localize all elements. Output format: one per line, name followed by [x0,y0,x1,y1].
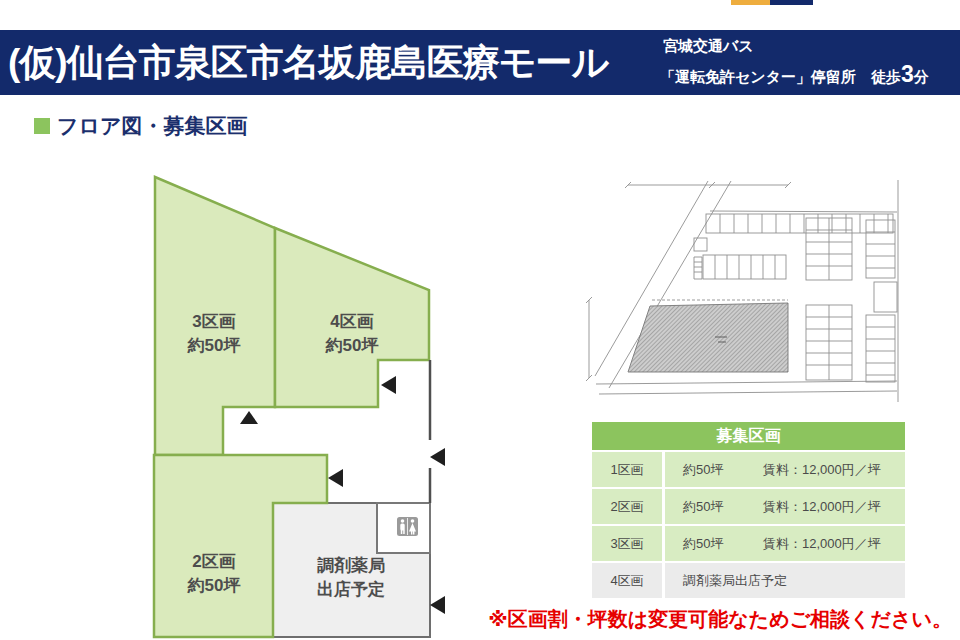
row-unit-name: 3区画 [592,526,662,561]
pharmacy-name: 調剤薬局 [291,554,411,578]
unit-4-name: 4区画 [292,310,412,334]
row-size: 約50坪 [683,535,737,553]
recruiting-table: 募集区画 1区画 約50坪 賃料：12,000円／坪 2区画 約50坪 賃料：1… [592,422,905,598]
entrance-arrow [328,469,343,487]
building-footprint [628,303,788,372]
pharmacy-label: 調剤薬局 出店予定 [291,554,411,602]
entrance-arrow [381,376,396,394]
unit-2-label: 2区画 約50坪 [154,550,274,598]
table-row: 3区画 約50坪 賃料：12,000円／坪 [592,526,905,561]
unit-3-label: 3区画 約50坪 [154,310,274,358]
row-details: 約50坪 賃料：12,000円／坪 [665,526,905,561]
entrance-arrow [240,411,258,424]
row-unit-name: 4区画 [592,563,662,598]
parking-block [866,220,895,278]
table-row: 2区画 約50坪 賃料：12,000円／坪 [592,489,905,524]
dimension-line-left [586,297,592,381]
row-details: 調剤薬局出店予定 [665,563,905,598]
row-rent: 賃料：12,000円／坪 [763,535,881,553]
table-row: 1区画 約50坪 賃料：12,000円／坪 [592,452,905,487]
unit-3-size: 約50坪 [154,334,274,358]
entrance-arrow [430,596,445,614]
table-row: 4区画 調剤薬局出店予定 [592,563,905,598]
row-details: 約50坪 賃料：12,000円／坪 [665,452,905,487]
pharmacy-status: 出店予定 [291,578,411,602]
row-size: 約50坪 [683,498,737,516]
parking-block [866,315,895,382]
flyer-page: (仮)仙台市泉区市名坂鹿島医療モール 宮城交通バス 「運転免許センター」停留所 … [0,0,960,640]
entrance-arrow [430,448,445,466]
unit-2-name: 2区画 [154,550,274,574]
unit-3-name: 3区画 [154,310,274,334]
row-size: 調剤薬局出店予定 [683,572,787,590]
row-unit-name: 1区画 [592,452,662,487]
row-unit-name: 2区画 [592,489,662,524]
change-notice: ※区画割・坪数は変更可能なためご相談ください。 [460,606,952,633]
row-size: 約50坪 [683,461,737,479]
dimension-line-top [625,182,791,188]
unit-4-label: 4区画 約50坪 [292,310,412,358]
unit-2-size: 約50坪 [154,574,274,598]
unit-4-size: 約50坪 [292,334,412,358]
row-details: 約50坪 賃料：12,000円／坪 [665,489,905,524]
restroom-icon [397,517,418,536]
table-title: 募集区画 [592,422,905,450]
site-plan-drawing [586,180,898,402]
row-rent: 賃料：12,000円／坪 [763,498,881,516]
row-rent: 賃料：12,000円／坪 [763,461,881,479]
